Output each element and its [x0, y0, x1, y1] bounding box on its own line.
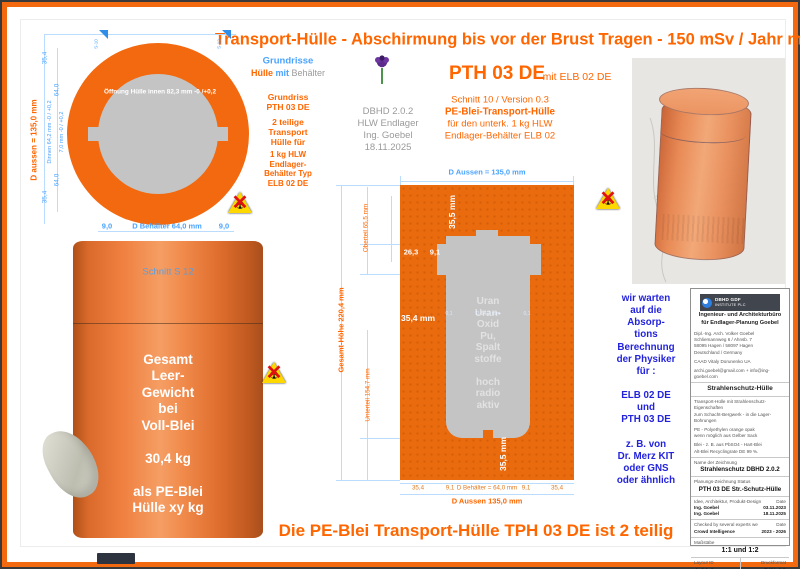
sheet-subtitle: Die PE-Blei Transport-Hülle TPH 03 DE is…: [279, 521, 674, 541]
dbhd-logo: DBHD GDF INSTITUTE PLC: [700, 294, 780, 311]
drawing-name-value: Strahlenschutz DBHD 2.0.2: [694, 466, 786, 474]
logo-line2: INSTITUTE PLC: [715, 303, 746, 308]
section-top-part-label: Oberteil 65,5 mm: [363, 204, 370, 252]
section-dim: 26,3: [404, 248, 419, 257]
section-bottom-part-label: Unterteil 154,7 mm: [365, 368, 372, 421]
radiation-warning-crossed-icon: [228, 192, 252, 214]
plan-container-diameter-label: D Behälter 64,0 mm: [132, 222, 202, 231]
table-row: Crowd Intelligence2023 - 2026: [694, 529, 786, 535]
description-3: Blei - z. B. aus PbSO4 - Hart-Blei Alt-B…: [694, 442, 786, 454]
title-block-address-section: Dipl.-Ing. Arch. Volker Goebel Schlieman…: [691, 329, 789, 383]
section-dim: 35,4: [412, 485, 424, 492]
section-wall-label: 35,4 mm: [401, 313, 435, 323]
print-format-cell: Druckformat DIN A2: [740, 558, 790, 569]
row-label: Ing. Goebel: [694, 511, 719, 517]
office-name: Ingenieur- und Architekturbüro für Endla…: [694, 312, 786, 327]
section-inner-tolerance: 0,1: [524, 311, 531, 317]
title-block-subject-section: Strahlenschutz-Hülle: [691, 383, 789, 397]
section-subtitle-line: Schnitt 10 / Version 0.3: [451, 95, 549, 106]
drawing-name-section: Name der Zeichnung Strahlenschutz DBHD 2…: [691, 458, 789, 478]
left-note-block1: Grundriss PTH 03 DE: [267, 92, 310, 112]
section-dim: 9,1: [522, 485, 531, 492]
section-total-height-label: Gesamt-Höhe 220,4 mm: [337, 287, 346, 372]
plan-dim: 64,0: [54, 174, 61, 187]
weight-note: Gesamt Leer- Gewicht bei Voll-Blei 30,4 …: [132, 352, 203, 517]
drawing-sheet: Transport-Hülle - Abschirmung bis vor de…: [0, 0, 800, 569]
container-bottom-notch: [483, 430, 493, 438]
dimension-line: [400, 181, 574, 182]
subheading-part-huelle: Hülle: [251, 68, 273, 78]
doc-info: DBHD 2.0.2 HLW Endlager Ing. Goebel 18.1…: [357, 106, 418, 155]
crossed-out-mark: [228, 192, 252, 214]
radiation-warning-crossed-icon: [262, 362, 286, 384]
checked-section: Checked by several experts weDate Crowd …: [691, 520, 789, 537]
section-lid-height-label: 35,5 mm: [447, 195, 457, 229]
plan-wall-label: 7,0 mm -0 / +0,2: [59, 112, 65, 153]
drawing-code-heading: PTH 03 DE: [449, 63, 545, 85]
section-dim: 9,1: [430, 248, 440, 257]
office-address: Dipl.-Ing. Arch. Volker Goebel Schlieman…: [694, 331, 786, 356]
container-lid-flange: [437, 244, 541, 275]
description-1: Transport-Hülle mit Strahlenschutz-Eigen…: [694, 399, 786, 424]
subject-title: Strahlenschutz-Hülle: [694, 385, 786, 394]
left-notes-heading: Grundrisse: [263, 56, 314, 67]
dimension-line: [98, 231, 234, 232]
description-2: PE - Polyethylen orange opak wenn möglic…: [694, 427, 786, 439]
plan-dim: 64,0: [54, 84, 61, 97]
title-block-logo-section: DBHD GDF INSTITUTE PLC Ingenieur- und Ar…: [691, 289, 789, 329]
section-bottom-height-label: 35,5 mm: [498, 437, 508, 471]
scale-value: 1:1 und 1:2: [694, 546, 786, 555]
dimension-line: [400, 494, 574, 495]
row-value: 2023 - 2026: [761, 529, 786, 535]
section-outer-diameter-top-label: D Aussen = 135,0 mm: [448, 168, 525, 177]
plan-inner-diameter-label: Dinnen 64,2 mm -0 / +0,2: [47, 100, 53, 163]
layout-id-cell: Layout ID A.01.1: [691, 558, 740, 569]
section-marker-icon: [222, 30, 231, 39]
drawing-code-suffix: mit ELB 02 DE: [543, 71, 612, 83]
scale-section: Maßstäbe 1:1 und 1:2: [691, 538, 789, 559]
plan-dim: 9,0: [219, 222, 229, 231]
section-subtitle-line: für den unterk. 1 kg HLW: [448, 119, 553, 130]
plan-outer-diameter-label: D aussen = 135,0 mm: [30, 99, 39, 180]
left-note-block2: 2 teilige Transport Hülle für: [268, 117, 307, 148]
layout-format-section: Layout ID A.01.1 Druckformat DIN A2: [691, 558, 789, 569]
physics-note: wir warten auf die Absorp- tions Berechn…: [617, 293, 676, 487]
footer-logo-chip: [97, 553, 135, 564]
section-container-diameter-label: D Behälter = 64,0 mm: [457, 485, 517, 492]
dimension-line: [360, 438, 400, 439]
plan-dim: 35,4: [42, 52, 49, 65]
drawing-status-value: PTH 03 DE Str.-Schutz-Hülle: [694, 486, 786, 494]
section-subtitle-line: PE-Blei-Transport-Hülle: [445, 107, 555, 118]
caad-credit: CAAD Vitaly Dorunenko UA: [694, 359, 786, 365]
dimension-line: [57, 48, 58, 212]
section-dim: 9,1: [446, 485, 455, 492]
dimension-line: [336, 185, 400, 186]
section-marker-label: S-10: [94, 39, 99, 49]
dimension-line: [44, 34, 236, 35]
section-outer-diameter-bottom-label: D Aussen 135,0 mm: [452, 497, 523, 506]
left-note-block3: 1 kg HLW Endlager- Behälter Typ ELB 02 D…: [264, 150, 312, 188]
table-row: Ing. Goebel18.11.2025: [694, 511, 786, 517]
subheading-part-mit: mit: [273, 68, 292, 78]
carnation-flower-icon: [372, 54, 392, 86]
render-panel: [632, 58, 785, 284]
logo-icon: [702, 298, 712, 308]
crossed-out-mark: [596, 188, 620, 210]
plan-dim: 35,4: [42, 191, 49, 204]
left-notes-subheading: Hülle mit Behälter: [251, 68, 325, 78]
plan-opening-label: Öffnung Hülle innen 82,3 mm -0 /+0,2: [104, 89, 216, 96]
crossed-out-mark: [262, 362, 286, 384]
shell-seam-line: [73, 323, 263, 324]
section-subtitle-line: Endlager-Behälter ELB 02: [445, 131, 555, 142]
row-value: 18.11.2025: [763, 511, 786, 517]
row-label: Crowd Intelligence: [694, 529, 735, 535]
cylinder-section-label: Schnitt S 12: [142, 267, 193, 278]
plan-dim: 9,0: [102, 222, 112, 231]
dimension-line: [391, 196, 392, 262]
radiation-warning-crossed-icon: [596, 188, 620, 210]
section-dim: 35,4: [551, 485, 563, 492]
title-block: DBHD GDF INSTITUTE PLC Ingenieur- und Ar…: [690, 288, 790, 546]
authors-section: Idee, Architektur, Produkt-DesignDate In…: [691, 497, 789, 521]
section-marker-icon: [99, 30, 108, 39]
title-block-description-section: Transport-Hülle mit Strahlenschutz-Eigen…: [691, 397, 789, 458]
subheading-part-behaelter: Behälter: [292, 68, 326, 78]
render-cylinder-texture: [661, 214, 744, 244]
drawing-status-section: Planungs-Zeichnung Status PTH 03 DE Str.…: [691, 477, 789, 497]
container-content-label: Uran Uran- Oxid Pu, Spalt stoffe hoch ra…: [474, 296, 501, 411]
dimension-line: [336, 480, 400, 481]
section-inner-tolerance: 0,1: [446, 311, 453, 317]
office-email: archi.goebel@gmail.com + info@ing-goebel…: [694, 368, 786, 380]
section-marker-label: S-12: [217, 39, 222, 49]
sheet-title: Transport-Hülle - Abschirmung bis vor de…: [215, 31, 800, 50]
logo-text: DBHD GDF INSTITUTE PLC: [715, 297, 746, 307]
dimension-line: [360, 274, 400, 275]
